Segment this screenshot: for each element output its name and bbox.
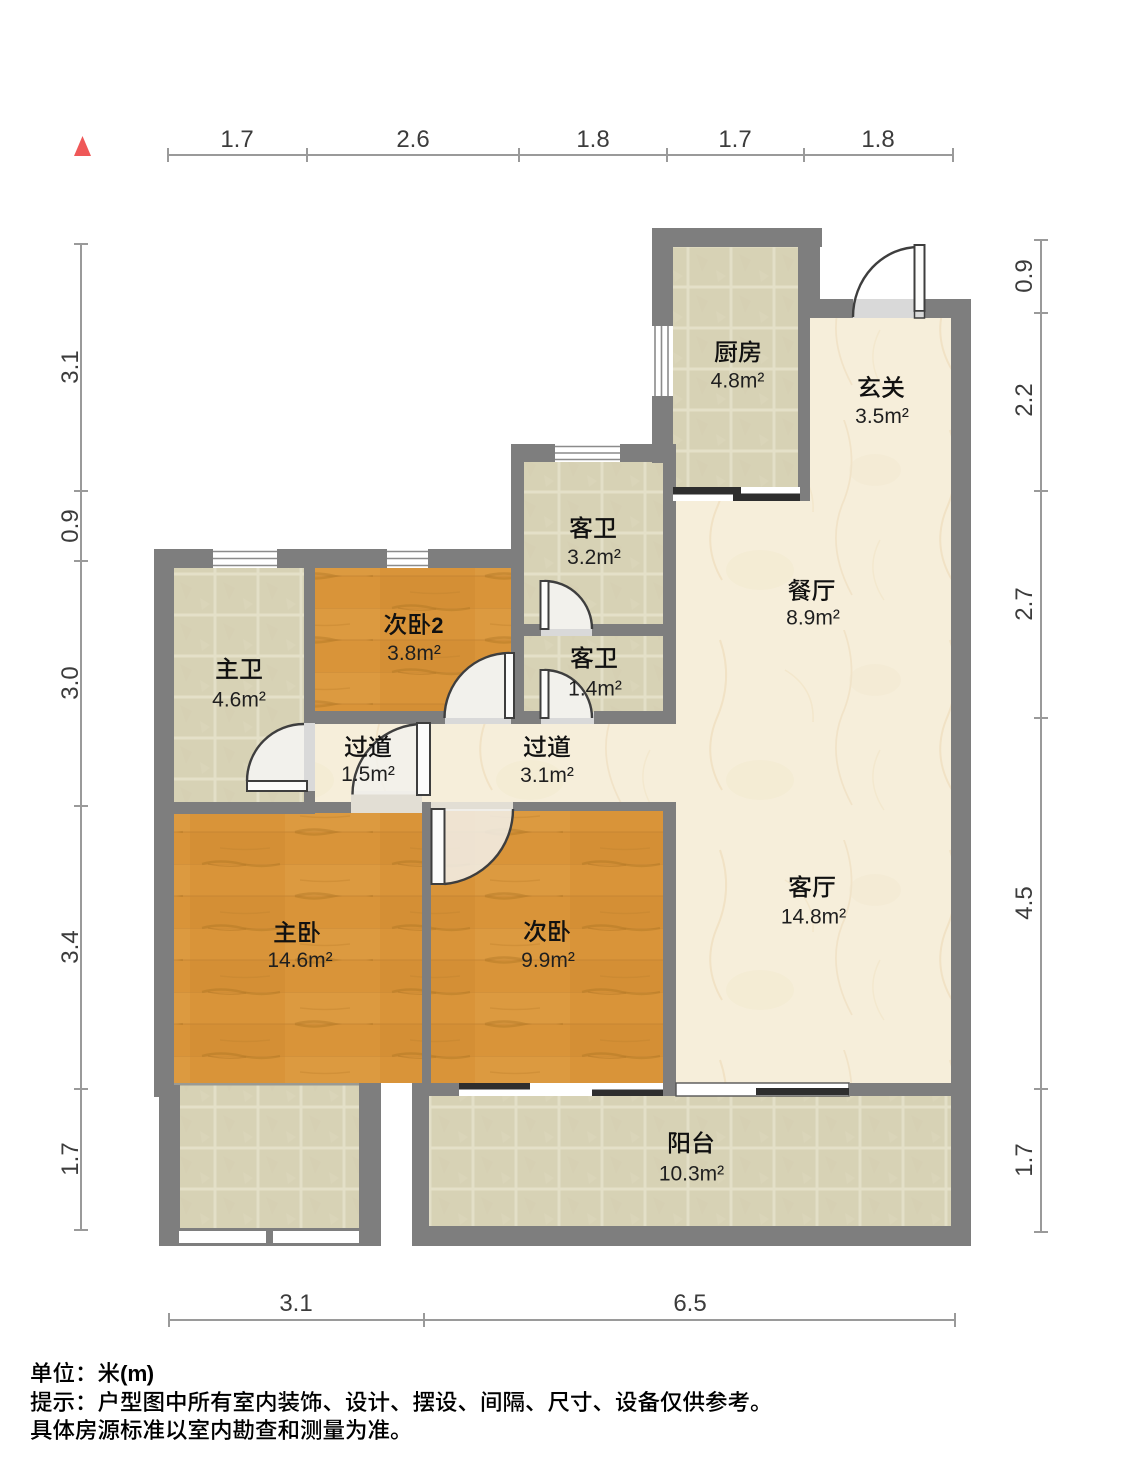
svg-text:1.5m²: 1.5m² [341,763,395,786]
svg-text:2.2: 2.2 [1011,383,1038,416]
svg-text:1.7: 1.7 [718,126,751,153]
svg-text:1.7: 1.7 [1011,1143,1038,1176]
svg-text:3.1: 3.1 [279,1290,312,1317]
svg-text:10.3m²: 10.3m² [659,1163,724,1186]
svg-text:2: 2 [431,613,443,638]
svg-text:3.1m²: 3.1m² [520,764,574,787]
svg-text:1.4m²: 1.4m² [568,678,622,701]
svg-text:1.7: 1.7 [220,126,253,153]
svg-text:9.9m²: 9.9m² [521,949,575,972]
svg-text:3.2m²: 3.2m² [567,546,621,569]
svg-text:2.6: 2.6 [396,126,429,153]
svg-text:4.6m²: 4.6m² [212,689,266,712]
svg-text:14.8m²: 14.8m² [781,906,846,929]
svg-text:3.8m²: 3.8m² [387,642,441,665]
svg-text:1.8: 1.8 [861,126,894,153]
svg-text:): ) [147,1361,155,1386]
svg-text:3.5m²: 3.5m² [855,405,909,428]
svg-text:6.5: 6.5 [673,1290,706,1317]
svg-text:0.9: 0.9 [1011,259,1038,292]
svg-text:3.4: 3.4 [57,930,84,963]
svg-text:1.8: 1.8 [576,126,609,153]
svg-text:4.8m²: 4.8m² [711,370,765,393]
svg-text:14.6m²: 14.6m² [267,949,332,972]
svg-text:1.7: 1.7 [57,1142,84,1175]
svg-text:3.1: 3.1 [57,350,84,383]
svg-text:3.0: 3.0 [57,666,84,699]
svg-text:m: m [127,1361,147,1386]
svg-text:0.9: 0.9 [57,509,84,542]
svg-text:8.9m²: 8.9m² [786,607,840,630]
svg-text:2.7: 2.7 [1011,587,1038,620]
svg-text:4.5: 4.5 [1011,886,1038,919]
